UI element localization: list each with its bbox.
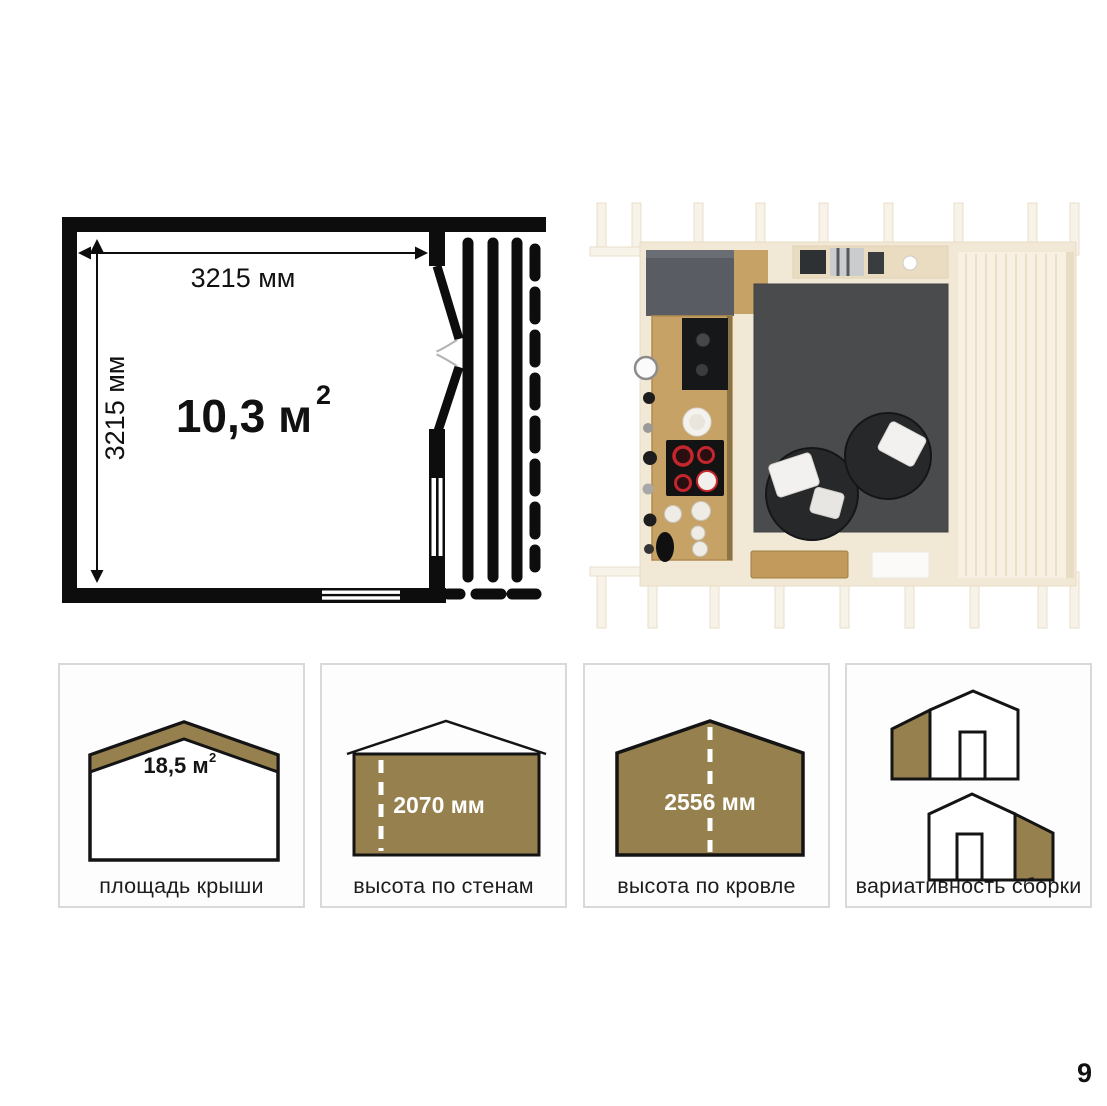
roof-height-value: 2556 мм — [664, 789, 756, 815]
height-dimension-label: 3215 мм — [100, 356, 130, 461]
wall-height-value: 2070 мм — [393, 792, 485, 818]
width-dimension-label: 3215 мм — [191, 263, 296, 293]
terrace — [958, 252, 1074, 578]
doormat — [751, 551, 848, 578]
window-right — [432, 478, 443, 556]
area-value: 10,3 м — [176, 390, 312, 442]
catalog-page: 3215 мм 3215 мм 10,3 м 2 — [0, 0, 1107, 1106]
card-assembly-variants-label: вариативность сборки — [847, 874, 1090, 899]
card-roof-area-label: площадь крыши — [60, 874, 303, 899]
area-superscript: 2 — [316, 380, 331, 410]
terrace-decking — [448, 243, 536, 594]
page-number: 9 — [1040, 1058, 1092, 1089]
floor-plan: 3215 мм 3215 мм 10,3 м 2 — [58, 210, 558, 612]
wall-shelf — [793, 246, 948, 278]
card-roof-height-label: высота по кровле — [585, 874, 828, 899]
card-wall-height: 2070 мм высота по стенам — [320, 663, 567, 908]
roof-area-superscript: 2 — [209, 750, 216, 765]
white-mat — [872, 552, 929, 578]
card-assembly-variants: вариативность сборки — [845, 663, 1092, 908]
roof-area-value: 18,5 м — [143, 753, 208, 778]
card-roof-area: 18,5 м 2 площадь крыши — [58, 663, 305, 908]
card-roof-height: 2556 мм высота по кровле — [583, 663, 830, 908]
interior-render — [588, 198, 1095, 634]
card-wall-height-label: высота по стенам — [322, 874, 565, 899]
door — [437, 266, 460, 431]
